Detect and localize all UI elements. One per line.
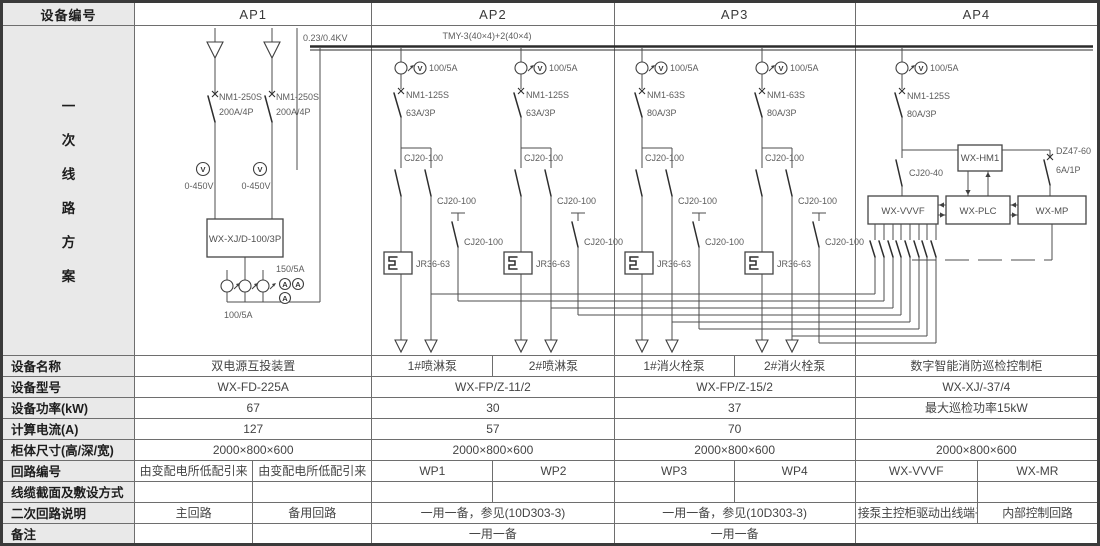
circuit-ap4b: WX-MR xyxy=(977,460,1098,481)
size-ap3: 2000×800×600 xyxy=(614,439,855,460)
drawing-sheet: 设备编号 AP1 AP2 AP3 AP4 一 次 线 路 方 案 设备名称 双电… xyxy=(0,0,1100,546)
size-ap2: 2000×800×600 xyxy=(372,439,614,460)
current-ap1: 127 xyxy=(135,418,372,439)
current-ap3: 70 xyxy=(614,418,855,439)
cable-ap3b xyxy=(734,481,855,502)
secondary-ap4b: 内部控制回路 xyxy=(977,502,1098,523)
remark-ap1b xyxy=(253,523,372,544)
rowlabel-cable: 线缆截面及敷设方式 xyxy=(2,481,135,502)
remark-ap1a xyxy=(135,523,253,544)
rowlabel-power: 设备功率(kW) xyxy=(2,397,135,418)
cable-ap4a xyxy=(855,481,977,502)
circuit-ap3a: WP3 xyxy=(614,460,734,481)
name-ap2b: 2#喷淋泵 xyxy=(493,355,614,376)
rowlabel-name: 设备名称 xyxy=(2,355,135,376)
diagram-cell-ap2 xyxy=(372,26,614,356)
secondary-ap4a: 接泵主控柜驱动出线端子 xyxy=(855,502,977,523)
section-label-primary-scheme: 一 次 线 路 方 案 xyxy=(2,26,135,356)
rowlabel-model: 设备型号 xyxy=(2,376,135,397)
secondary-ap3: 一用一备，参见(10D303-3) xyxy=(614,502,855,523)
rowlabel-secondary: 二次回路说明 xyxy=(2,502,135,523)
secondary-ap2: 一用一备，参见(10D303-3) xyxy=(372,502,614,523)
diagram-cell-ap1 xyxy=(135,26,372,356)
power-ap2: 30 xyxy=(372,397,614,418)
rowlabel-remark: 备注 xyxy=(2,523,135,544)
name-ap1: 双电源互投装置 xyxy=(135,355,372,376)
header-ap3: AP3 xyxy=(614,2,855,26)
power-ap4: 最大巡检功率15kW xyxy=(855,397,1098,418)
power-ap3: 37 xyxy=(614,397,855,418)
header-ap2: AP2 xyxy=(372,2,614,26)
size-ap4: 2000×800×600 xyxy=(855,439,1098,460)
header-device-no: 设备编号 xyxy=(2,2,135,26)
model-ap1: WX-FD-225A xyxy=(135,376,372,397)
circuit-ap2a: WP1 xyxy=(372,460,493,481)
circuit-ap2b: WP2 xyxy=(493,460,614,481)
cable-ap4b xyxy=(977,481,1098,502)
cable-ap2a xyxy=(372,481,493,502)
remark-ap4 xyxy=(855,523,1098,544)
current-ap4 xyxy=(855,418,1098,439)
power-ap1: 67 xyxy=(135,397,372,418)
header-ap1: AP1 xyxy=(135,2,372,26)
model-ap2: WX-FP/Z-11/2 xyxy=(372,376,614,397)
spec-table: 设备编号 AP1 AP2 AP3 AP4 一 次 线 路 方 案 设备名称 双电… xyxy=(0,0,1100,546)
remark-ap2: 一用一备 xyxy=(372,523,614,544)
cable-ap3a xyxy=(614,481,734,502)
model-ap4: WX-XJ/-37/4 xyxy=(855,376,1098,397)
cable-ap1b xyxy=(253,481,372,502)
current-ap2: 57 xyxy=(372,418,614,439)
remark-ap3: 一用一备 xyxy=(614,523,855,544)
diagram-cell-ap3 xyxy=(614,26,855,356)
name-ap3a: 1#消火栓泵 xyxy=(614,355,734,376)
secondary-ap1b: 备用回路 xyxy=(253,502,372,523)
rowlabel-circuit-no: 回路编号 xyxy=(2,460,135,481)
circuit-ap1a: 由变配电所低配引来 xyxy=(135,460,253,481)
rowlabel-current: 计算电流(A) xyxy=(2,418,135,439)
size-ap1: 2000×800×600 xyxy=(135,439,372,460)
cable-ap1a xyxy=(135,481,253,502)
name-ap4: 数字智能消防巡检控制柜 xyxy=(855,355,1098,376)
name-ap3b: 2#消火栓泵 xyxy=(734,355,855,376)
circuit-ap3b: WP4 xyxy=(734,460,855,481)
secondary-ap1a: 主回路 xyxy=(135,502,253,523)
header-ap4: AP4 xyxy=(855,2,1098,26)
cable-ap2b xyxy=(493,481,614,502)
model-ap3: WX-FP/Z-15/2 xyxy=(614,376,855,397)
diagram-cell-ap4 xyxy=(855,26,1098,356)
circuit-ap4a: WX-VVVF xyxy=(855,460,977,481)
rowlabel-size: 柜体尺寸(高/深/宽) xyxy=(2,439,135,460)
name-ap2a: 1#喷淋泵 xyxy=(372,355,493,376)
circuit-ap1b: 由变配电所低配引来 xyxy=(253,460,372,481)
section-label-vertical: 一 次 线 路 方 案 xyxy=(5,26,132,355)
